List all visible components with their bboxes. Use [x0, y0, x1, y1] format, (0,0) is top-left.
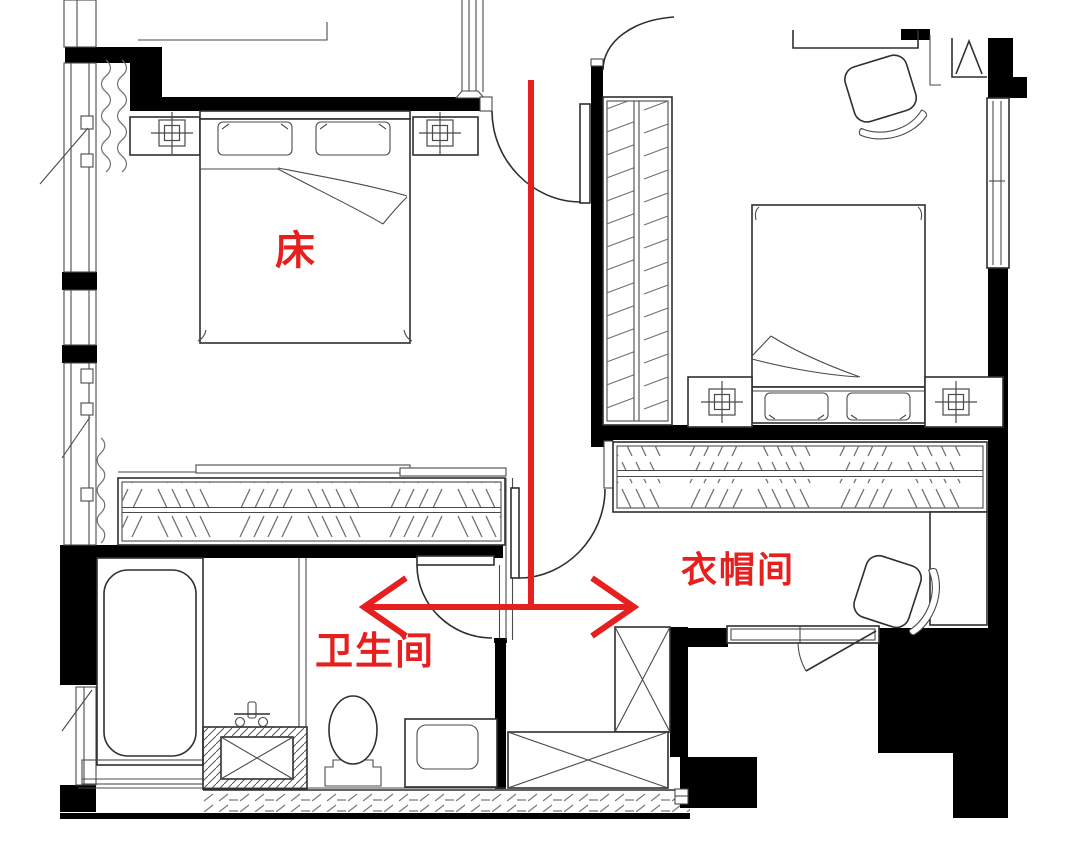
riser-column-lines — [456, 0, 484, 98]
desk-return-line — [930, 35, 941, 85]
door-swing-arc — [492, 111, 581, 202]
cloakroom-desk — [930, 512, 987, 625]
door-leaf — [417, 556, 494, 565]
curtain-icon — [102, 60, 111, 172]
desk — [793, 30, 918, 48]
door-jamb — [480, 97, 492, 111]
window-mullion — [81, 116, 93, 129]
red-measure-line — [528, 80, 534, 608]
door-leaf — [580, 104, 590, 203]
tub-step — [82, 760, 203, 784]
window-mullion — [81, 154, 93, 167]
wall-light-icon — [952, 38, 987, 77]
pillow — [316, 122, 390, 155]
bed-2 — [752, 205, 925, 387]
faucet-icon — [234, 702, 270, 727]
curtain-icon — [97, 438, 105, 543]
bathroom — [78, 556, 879, 804]
bed-headboard — [200, 111, 410, 119]
bathroom-window — [76, 687, 96, 785]
label-bed: 床 — [275, 228, 317, 274]
door-swing-arc — [603, 17, 674, 70]
slab-edge — [60, 813, 690, 819]
slab-outline — [138, 22, 327, 40]
cloakroom — [613, 442, 987, 639]
chair — [840, 51, 930, 147]
door-swing-arc — [798, 642, 806, 671]
window-mullion — [81, 369, 93, 383]
floor-plan-page: 床 卫生间 衣帽间 — [0, 0, 1080, 841]
label-cloakroom: 衣帽间 — [681, 550, 795, 591]
window-mullion — [81, 403, 93, 415]
nightstand — [413, 117, 478, 155]
bedroom-2 — [603, 30, 1009, 427]
entry-sill — [727, 626, 879, 643]
door-leaf — [511, 488, 519, 578]
floor-hatch-strip — [60, 790, 690, 819]
curtain-icon — [118, 60, 127, 172]
toilet — [329, 696, 377, 764]
right-window — [987, 98, 1009, 268]
sliding-door-panel — [400, 468, 506, 476]
door-jamb — [604, 441, 613, 488]
window-mullion — [81, 488, 93, 501]
pillow — [218, 122, 292, 155]
sliding-door-panel — [196, 465, 410, 473]
pillow — [847, 393, 910, 420]
label-bathroom: 卫生间 — [315, 629, 435, 673]
pillow — [765, 393, 828, 420]
bathtub — [104, 570, 196, 756]
door-swing-arc — [417, 565, 492, 638]
wall-cap — [591, 59, 603, 66]
floor-plan-svg: 床 卫生间 衣帽间 — [0, 0, 1080, 841]
